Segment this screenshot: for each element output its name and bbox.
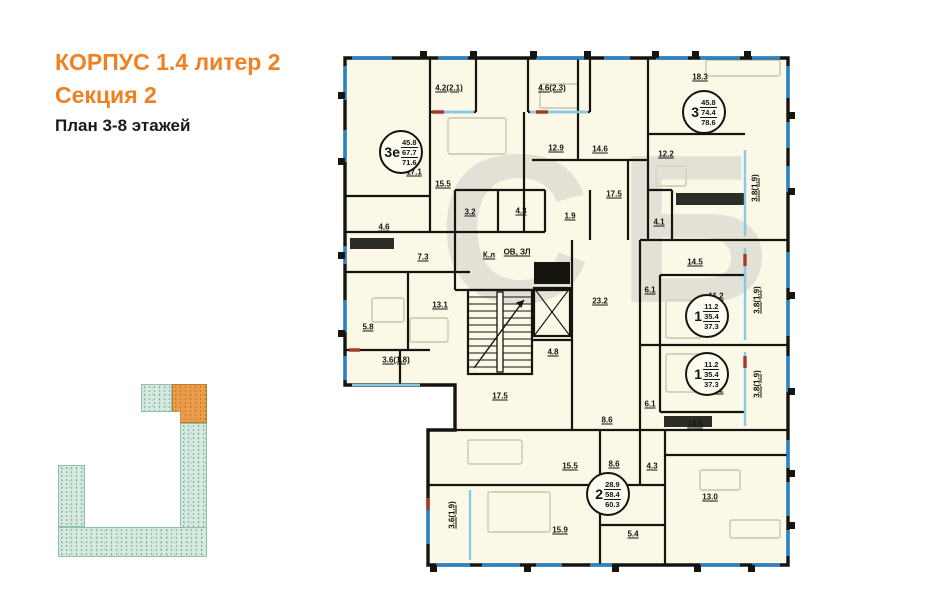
- floor-plan: СБ: [0, 0, 941, 600]
- service-shaft: [534, 262, 570, 284]
- floor-plan-page: КОРПУС 1.4 литер 2 Секция 2 План 3-8 эта…: [0, 0, 941, 600]
